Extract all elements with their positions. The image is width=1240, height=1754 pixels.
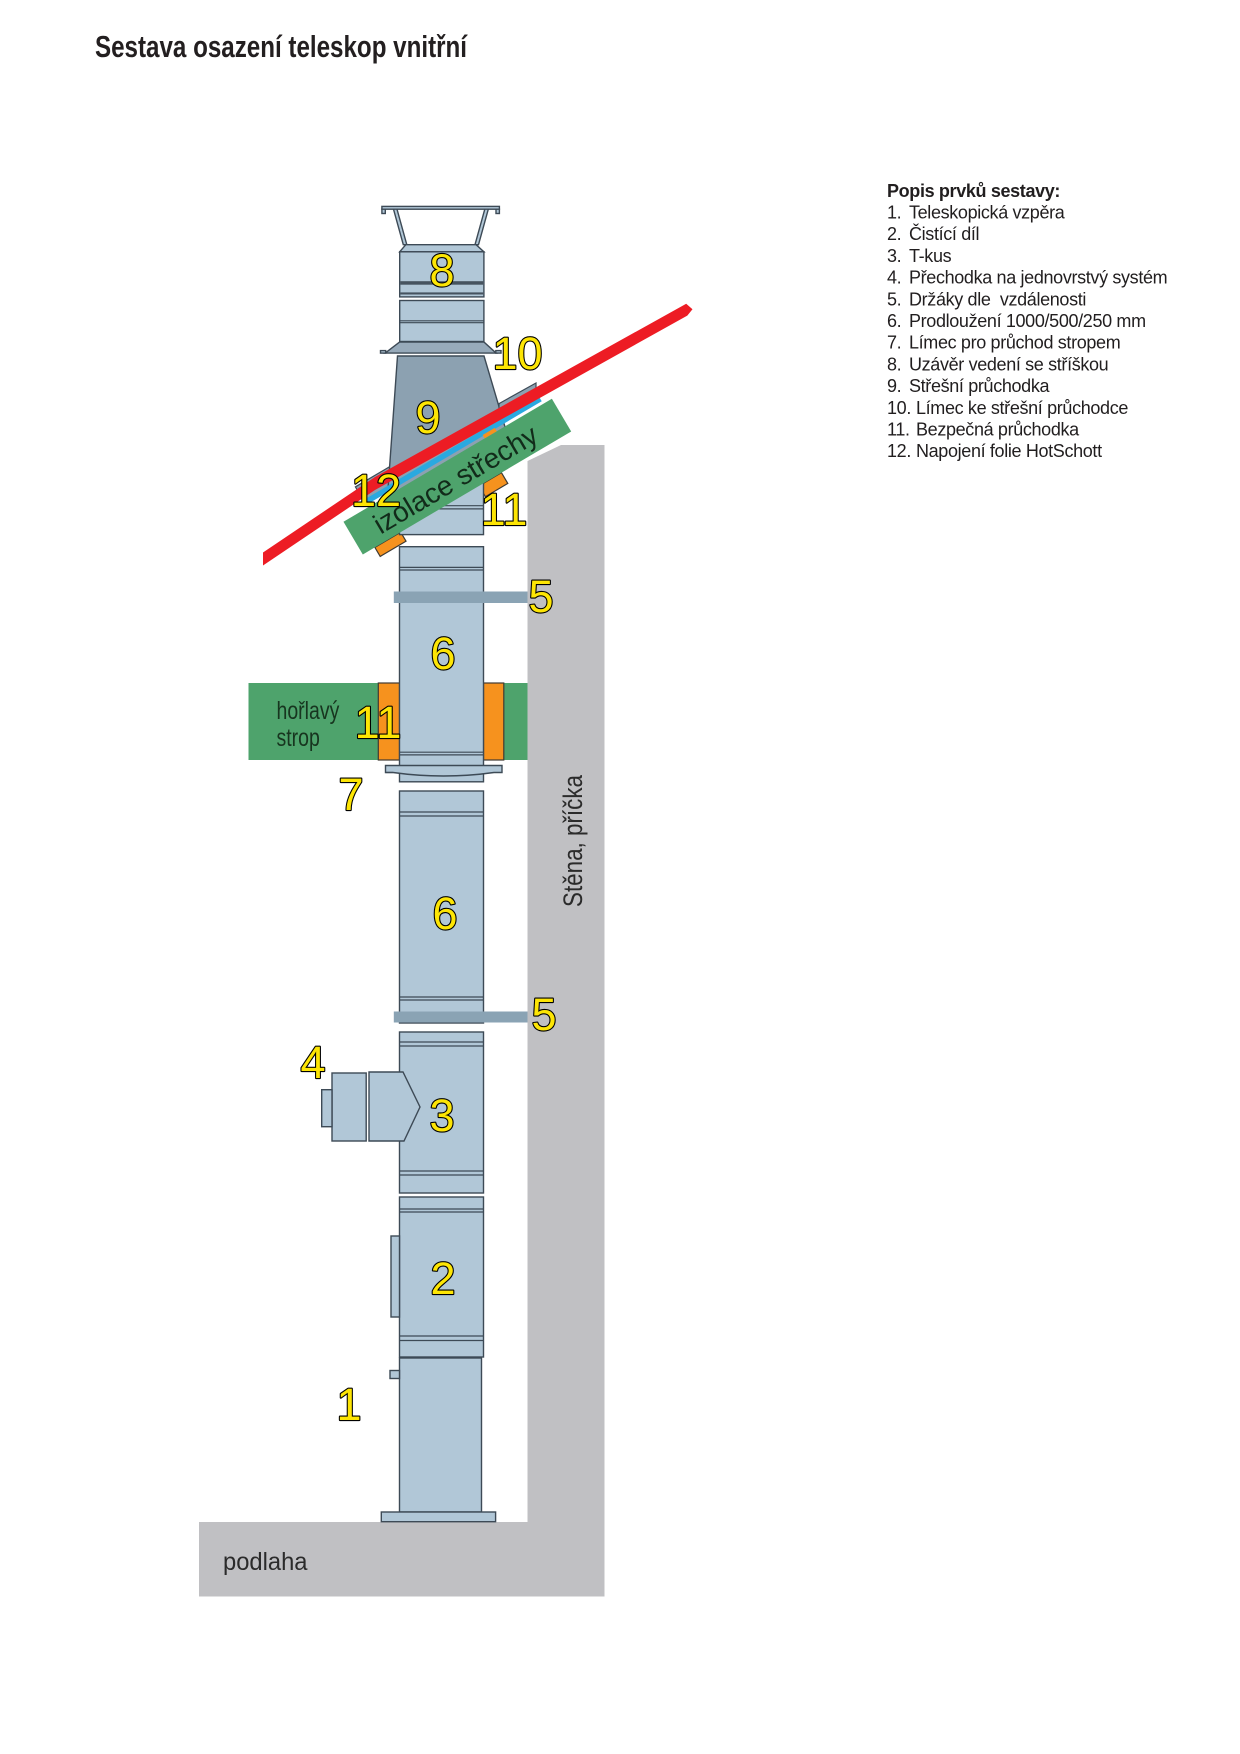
svg-text:11: 11 [355,697,402,748]
svg-text:12: 12 [351,465,401,516]
svg-text:9.Střešní průchodka: 9.Střešní průchodka [887,376,1050,396]
svg-text:podlaha: podlaha [223,1548,308,1576]
svg-text:strop: strop [277,723,320,751]
svg-text:4: 4 [300,1037,325,1088]
svg-text:7.Límec pro průchod stropem: 7.Límec pro průchod stropem [887,333,1120,353]
svg-text:8: 8 [429,245,454,296]
svg-text:6: 6 [432,888,457,939]
svg-text:Sestava osazení teleskop vnitř: Sestava osazení teleskop vnitřní [95,29,468,64]
svg-text:5: 5 [531,989,556,1040]
svg-text:8.Uzávěr vedení se stříškou: 8.Uzávěr vedení se stříškou [887,354,1108,374]
svg-text:5: 5 [528,571,553,622]
svg-text:hořlavý: hořlavý [277,697,341,725]
svg-text:9: 9 [415,392,440,443]
svg-text:5.Držáky dle vzdálenosti: 5.Držáky dle vzdálenosti [887,289,1086,309]
svg-text:6: 6 [430,628,455,679]
svg-text:3: 3 [429,1090,454,1141]
svg-text:6.Prodloužení 1000/500/250 mm: 6.Prodloužení 1000/500/250 mm [887,311,1146,331]
svg-text:12.Napojení folie HotSchott: 12.Napojení folie HotSchott [887,441,1102,461]
svg-text:11: 11 [481,484,528,535]
svg-text:2.Čistící díl: 2.Čistící díl [887,223,979,244]
svg-text:10.Límec ke střešní průchodce: 10.Límec ke střešní průchodce [887,398,1128,418]
svg-text:Popis prvků sestavy:: Popis prvků sestavy: [887,181,1060,201]
svg-text:4.Přechodka na jednovrstvý sys: 4.Přechodka na jednovrstvý systém [887,268,1167,288]
svg-text:10: 10 [492,328,542,379]
svg-text:1: 1 [336,1379,361,1430]
svg-text:1.Teleskopická vzpěra: 1.Teleskopická vzpěra [887,203,1066,223]
svg-text:11.Bezpečná průchodka: 11.Bezpečná průchodka [887,420,1080,440]
svg-text:Stěna, příčka: Stěna, příčka [559,775,588,907]
svg-text:2: 2 [430,1253,455,1304]
svg-text:7: 7 [338,769,363,820]
svg-text:3.T-kus: 3.T-kus [887,246,952,266]
